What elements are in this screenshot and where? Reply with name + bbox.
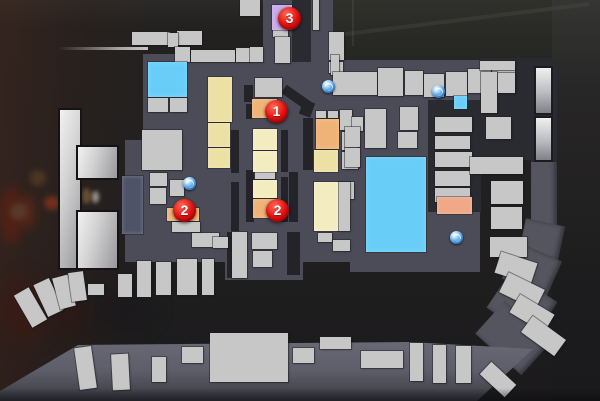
street-area	[350, 260, 480, 272]
building	[252, 233, 277, 249]
alley-shadow	[281, 130, 288, 172]
item-pickup-icon[interactable]	[450, 231, 463, 244]
bg-bottle-object	[92, 191, 99, 203]
room-tan-large	[314, 182, 338, 231]
item-pickup-icon[interactable]	[432, 85, 445, 98]
building	[433, 345, 446, 383]
building	[491, 181, 523, 204]
item-pickup-icon[interactable]	[183, 177, 196, 190]
bg-crate-object	[30, 170, 46, 186]
alley-shadow	[231, 182, 239, 231]
objective-marker[interactable]: 2	[266, 199, 289, 222]
building	[150, 188, 166, 204]
room-tan	[314, 150, 338, 172]
room-tan	[208, 148, 230, 168]
building	[213, 237, 228, 248]
alley-shadow	[289, 172, 298, 222]
building	[118, 274, 132, 297]
bg-crate-object	[10, 203, 26, 220]
building	[400, 107, 418, 130]
game-map-screen[interactable]: 1223	[0, 0, 600, 401]
water-pool	[148, 62, 187, 97]
building	[293, 348, 314, 363]
wall-line	[58, 47, 148, 50]
building	[316, 111, 326, 118]
building	[345, 148, 360, 167]
building	[255, 78, 282, 97]
building	[333, 240, 350, 251]
alley-shadow	[231, 130, 239, 173]
building	[253, 251, 272, 267]
building	[318, 233, 332, 242]
room-salmon	[437, 197, 472, 214]
building	[435, 152, 472, 167]
building	[68, 271, 87, 302]
room-blue-gray	[122, 176, 143, 234]
building	[345, 127, 360, 147]
building	[191, 50, 235, 62]
room-tan	[208, 123, 230, 147]
room-tan	[253, 180, 277, 198]
building	[486, 117, 511, 139]
alley-shadow	[287, 232, 300, 275]
map-canvas: 1223	[0, 0, 600, 401]
building	[175, 47, 190, 62]
building	[498, 73, 515, 93]
room-tan	[208, 77, 232, 122]
building	[88, 284, 104, 295]
building	[275, 37, 290, 63]
building	[333, 72, 377, 95]
building	[446, 72, 467, 96]
white-tower-structure	[60, 110, 80, 268]
building	[361, 351, 403, 368]
building	[137, 261, 151, 297]
building	[240, 0, 260, 16]
building	[328, 111, 338, 118]
building	[410, 343, 423, 381]
building	[177, 259, 197, 295]
bg-bottle-object	[82, 188, 91, 204]
building	[255, 172, 275, 179]
room-tan	[253, 151, 277, 172]
building	[232, 232, 247, 278]
water-pool-small	[454, 96, 467, 109]
building	[111, 354, 130, 391]
building	[365, 109, 386, 148]
room-orange	[316, 119, 339, 149]
building	[168, 33, 178, 47]
objective-marker[interactable]: 3	[278, 7, 301, 30]
building	[148, 98, 168, 112]
building	[481, 72, 497, 113]
building	[491, 207, 522, 229]
white-tower-structure	[78, 147, 117, 178]
building	[210, 333, 288, 382]
building	[236, 48, 250, 62]
building	[480, 61, 515, 70]
building	[250, 47, 263, 62]
pillar-structure	[536, 118, 551, 160]
alley-shadow	[303, 118, 313, 170]
objective-marker[interactable]: 2	[173, 199, 196, 222]
white-tower-structure	[78, 212, 117, 268]
building	[320, 337, 351, 349]
water-pool-large	[366, 157, 426, 252]
building	[142, 130, 182, 170]
building	[202, 259, 214, 295]
building	[182, 347, 203, 363]
building	[170, 98, 187, 112]
building	[470, 157, 523, 174]
building	[170, 180, 184, 196]
building	[405, 71, 423, 95]
building	[435, 136, 470, 149]
building	[132, 32, 170, 45]
building	[150, 173, 167, 186]
item-pickup-icon[interactable]	[322, 80, 335, 93]
building	[398, 132, 417, 148]
building	[152, 357, 166, 382]
bg-red-object	[44, 196, 60, 210]
building	[156, 262, 171, 295]
room-tan	[253, 129, 277, 150]
building	[378, 68, 403, 96]
building	[338, 182, 350, 231]
objective-marker[interactable]: 1	[265, 100, 288, 123]
bg-bottom-vignette	[0, 388, 600, 401]
building	[172, 222, 200, 232]
building	[177, 31, 202, 45]
building	[435, 117, 472, 132]
building	[456, 346, 471, 383]
building	[435, 171, 470, 186]
building	[313, 0, 319, 30]
building	[273, 30, 288, 37]
pillar-structure	[536, 68, 551, 113]
